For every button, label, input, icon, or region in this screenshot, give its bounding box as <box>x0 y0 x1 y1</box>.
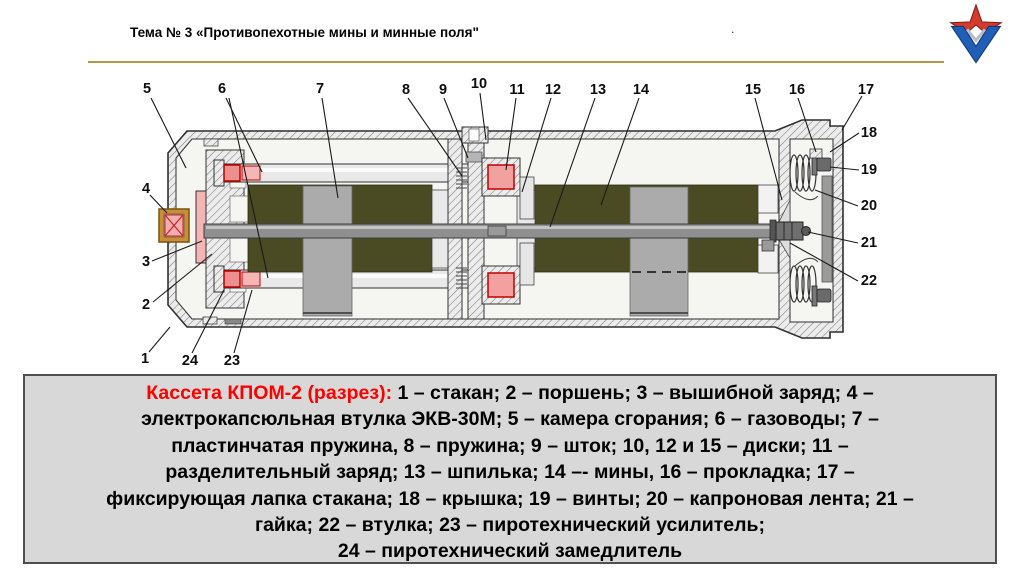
legend-line: фиксирующая лапка стакана; 18 – крышка; … <box>25 486 995 512</box>
slide: Тема № 3 «Противопехотные мины и минные … <box>0 0 1024 576</box>
callout-16: 16 <box>789 82 805 98</box>
separating-charge-top <box>482 158 520 196</box>
legend-box: Кассета КПОМ-2 (разрез): 1 – стакан; 2 –… <box>23 374 997 564</box>
callout-21: 21 <box>861 235 877 251</box>
legend-line-text: 1 – стакан; 2 – поршень; 3 – вышибной за… <box>392 382 874 404</box>
booster-element <box>242 272 260 286</box>
callout-19: 19 <box>861 162 877 178</box>
callout-24: 24 <box>182 353 198 369</box>
stem-cap <box>466 152 482 162</box>
bushing <box>762 240 774 251</box>
legend-line: 24 – пиротехнический замедлитель <box>25 538 995 564</box>
top-fitting-bore <box>469 129 479 141</box>
disk-flange <box>520 243 534 285</box>
callout-5: 5 <box>143 81 151 97</box>
end-support <box>758 185 778 213</box>
delay-element <box>224 165 240 181</box>
disk-flange <box>520 177 534 219</box>
plate-spring-right <box>630 187 688 316</box>
piston-notch <box>230 196 250 222</box>
callout-22: 22 <box>861 273 877 289</box>
callout-17: 17 <box>858 82 874 98</box>
callout-14: 14 <box>633 82 649 98</box>
piston-notch <box>230 236 250 262</box>
callout-18: 18 <box>861 125 877 141</box>
callout-10: 10 <box>471 76 487 92</box>
callout-15: 15 <box>745 82 761 98</box>
plate-spring-left <box>303 186 352 316</box>
callout-9: 9 <box>439 82 447 98</box>
top-block <box>204 139 218 146</box>
callout-3: 3 <box>142 254 150 270</box>
legend-line: пластинчатая пружина, 8 – пружина; 9 – ш… <box>25 433 995 459</box>
callout-12: 12 <box>545 82 561 98</box>
callout-7: 7 <box>316 81 324 97</box>
callout-1: 1 <box>141 351 149 367</box>
callout-13: 13 <box>590 82 606 98</box>
callout-20: 20 <box>861 198 877 214</box>
callout-2: 2 <box>142 297 150 313</box>
legend-lead: Кассета КПОМ-2 (разрез): <box>146 382 392 404</box>
callout-23: 23 <box>224 353 240 369</box>
callout-11: 11 <box>509 82 524 98</box>
base-block <box>225 319 241 324</box>
separating-charge-bottom <box>482 266 520 304</box>
legend-line: гайка; 22 – втулка; 23 – пиротехнический… <box>25 512 995 538</box>
legend-line: Кассета КПОМ-2 (разрез): 1 – стакан; 2 –… <box>25 380 995 406</box>
ekv-fitting <box>159 209 189 242</box>
callout-4: 4 <box>142 181 150 197</box>
callout-6: 6 <box>218 81 226 97</box>
central-stud <box>204 224 790 238</box>
legend-line: разделительный заряд; 13 – шпилька; 14 –… <box>25 459 995 485</box>
delay-element <box>224 271 240 287</box>
callout-8: 8 <box>402 82 410 98</box>
legend-line: электрокапсюльная втулка ЭКВ-30М; 5 – ка… <box>25 406 995 432</box>
